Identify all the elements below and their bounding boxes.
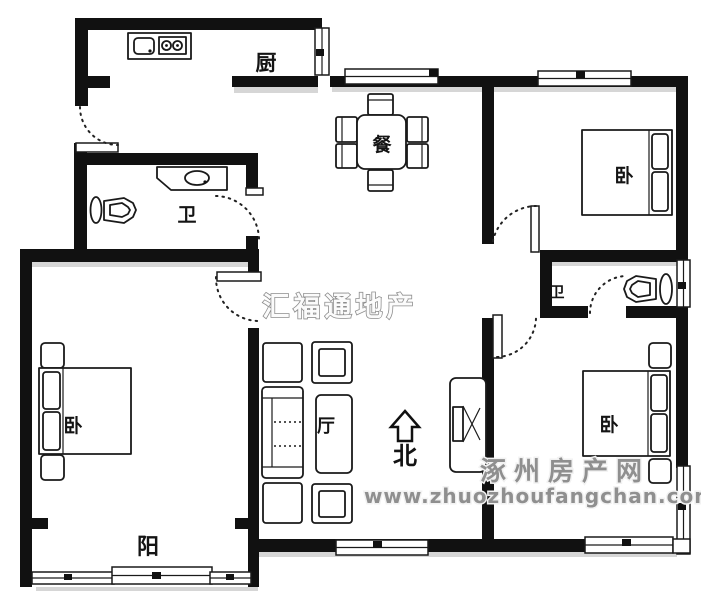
wall bbox=[540, 250, 688, 262]
wall bbox=[20, 249, 32, 587]
wall bbox=[626, 306, 676, 318]
agency-watermark: 汇福通地产 bbox=[263, 292, 418, 323]
door-arc bbox=[216, 196, 259, 239]
toilet-icon bbox=[91, 197, 137, 223]
wall bbox=[246, 236, 258, 252]
door-arc bbox=[216, 277, 259, 321]
wall bbox=[235, 518, 248, 529]
door-arc bbox=[80, 107, 118, 145]
wall bbox=[248, 328, 259, 587]
toilet-icon bbox=[624, 274, 672, 304]
dining-label: 餐 bbox=[372, 133, 392, 156]
window bbox=[315, 28, 329, 75]
wall bbox=[676, 76, 688, 262]
door-leaf bbox=[531, 206, 539, 252]
bedroom-top-right-label: 卧 bbox=[614, 165, 633, 187]
window bbox=[345, 69, 438, 84]
site-name-watermark: 涿州房产网 bbox=[480, 457, 650, 487]
bathroom-left-label: 卫 bbox=[177, 204, 196, 226]
wall bbox=[232, 76, 318, 87]
kitchen-label: 厨 bbox=[256, 51, 277, 75]
bed-icon bbox=[39, 343, 131, 480]
door-arc bbox=[590, 276, 627, 313]
wall bbox=[75, 76, 110, 88]
wall bbox=[74, 153, 257, 165]
door-leaf bbox=[217, 272, 261, 281]
window bbox=[210, 572, 251, 584]
kitchen-counter-icon bbox=[128, 33, 191, 59]
site-url-watermark: www.zhuozhoufangchan.com bbox=[364, 484, 701, 508]
wall bbox=[75, 18, 88, 106]
floor-plan: 厨 餐 卫 卧 卫 卧 厅 北 卧 阳 汇福通地产 涿州房产网 www.zhuo… bbox=[0, 0, 701, 600]
door-leaf bbox=[493, 315, 502, 358]
door-arc bbox=[492, 206, 536, 246]
wall bbox=[482, 76, 494, 244]
wall bbox=[540, 306, 588, 318]
wall bbox=[32, 518, 48, 529]
window bbox=[585, 537, 673, 553]
window bbox=[538, 71, 631, 86]
window bbox=[677, 260, 690, 307]
living-room-label: 厅 bbox=[317, 416, 335, 437]
bedroom-bottom-right-label: 卧 bbox=[599, 414, 618, 436]
door-arc bbox=[497, 318, 536, 357]
sink-icon bbox=[157, 167, 227, 190]
wall bbox=[20, 249, 259, 262]
floor-plan-page: 厨 餐 卫 卧 卫 卧 厅 北 卧 阳 汇福通地产 涿州房产网 www.zhuo… bbox=[0, 0, 701, 600]
wall bbox=[75, 18, 322, 30]
north-arrow-icon bbox=[391, 411, 419, 441]
window bbox=[112, 567, 212, 584]
north-label: 北 bbox=[393, 442, 417, 470]
bathroom-right-label: 卫 bbox=[549, 283, 564, 301]
balcony-label: 阳 bbox=[137, 535, 159, 560]
bedroom-bottom-left-label: 卧 bbox=[63, 415, 82, 437]
window bbox=[32, 572, 114, 584]
sofa-icon bbox=[262, 342, 352, 523]
furniture bbox=[39, 33, 672, 523]
door-frame bbox=[246, 188, 263, 195]
window bbox=[336, 540, 428, 555]
window-corner bbox=[673, 539, 690, 553]
wall bbox=[676, 306, 688, 468]
